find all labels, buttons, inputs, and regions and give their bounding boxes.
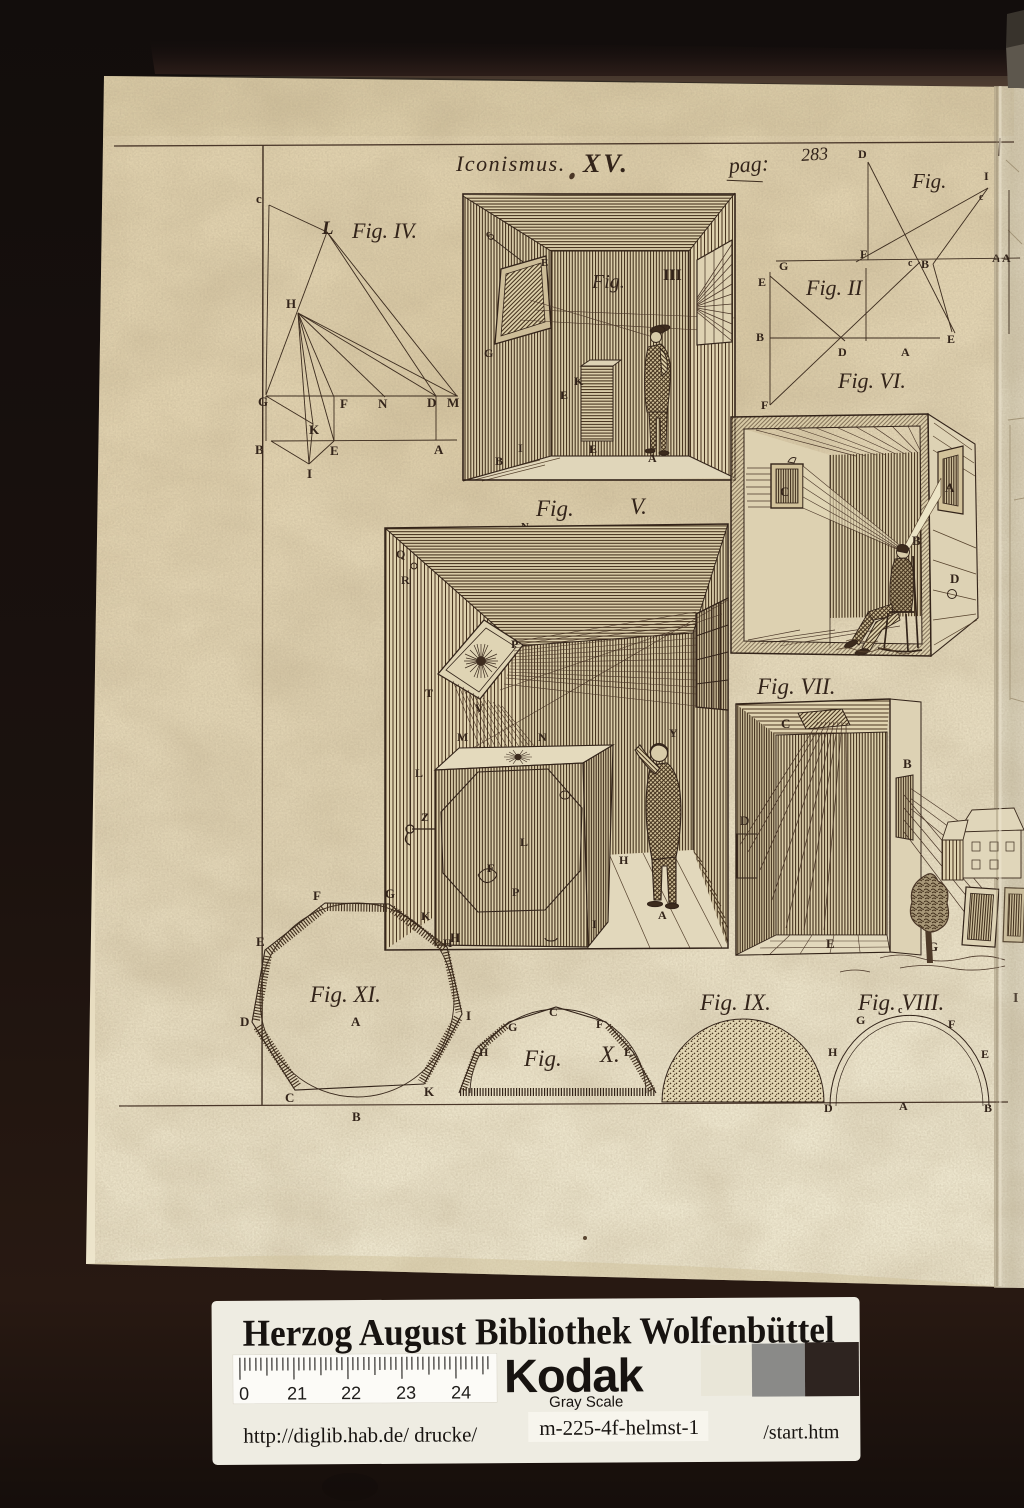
svg-text:G: G: [385, 886, 395, 901]
svg-text:A: A: [1002, 251, 1011, 265]
svg-text:E: E: [589, 442, 597, 456]
svg-text:E: E: [560, 388, 568, 402]
svg-text:C: C: [780, 484, 789, 499]
svg-text:M: M: [447, 395, 459, 410]
svg-text:B: B: [903, 756, 912, 771]
svg-text:Z: Z: [421, 810, 429, 824]
svg-text:G: G: [484, 346, 493, 360]
svg-text:Fig. XI.: Fig. XI.: [309, 982, 381, 1007]
svg-text:F: F: [860, 247, 867, 261]
svg-text:Fig.: Fig.: [591, 271, 625, 293]
svg-text:c: c: [256, 191, 262, 206]
svg-text:Fig. VII.: Fig. VII.: [756, 674, 836, 699]
svg-text:F: F: [596, 1017, 603, 1031]
svg-text:K: K: [424, 1084, 435, 1099]
svg-text:D: D: [240, 1014, 249, 1029]
svg-text:N: N: [378, 396, 388, 411]
svg-text:Fig.: Fig.: [535, 496, 574, 521]
svg-text:0: 0: [239, 1384, 249, 1404]
svg-text:G: G: [779, 259, 788, 273]
svg-text:N: N: [538, 730, 547, 744]
svg-text:C: C: [549, 1005, 558, 1019]
svg-text:G: G: [258, 394, 268, 409]
svg-text:D: D: [824, 1101, 833, 1115]
svg-text:D: D: [740, 813, 749, 828]
svg-text:Y: Y: [669, 726, 678, 740]
svg-text:c: c: [486, 229, 491, 240]
svg-text:Fig. IV.: Fig. IV.: [351, 218, 417, 243]
svg-text:III: III: [663, 267, 682, 284]
svg-text:H: H: [479, 1045, 489, 1059]
svg-text:Fig.: Fig.: [911, 169, 946, 193]
svg-text:Fig. VI.: Fig. VI.: [837, 368, 906, 393]
svg-text:Iconismus.: Iconismus.: [455, 151, 566, 176]
svg-text:m-225-4f-helmst-1: m-225-4f-helmst-1: [539, 1415, 699, 1440]
svg-text:D: D: [838, 345, 847, 359]
svg-text:A: A: [658, 908, 667, 922]
svg-text:P: P: [511, 637, 518, 651]
svg-text:T: T: [425, 686, 433, 700]
svg-text:B: B: [921, 257, 929, 271]
svg-text:K: K: [421, 909, 431, 923]
svg-text:I: I: [984, 169, 989, 183]
svg-text:283: 283: [800, 143, 828, 165]
svg-text:C: C: [285, 1090, 294, 1105]
svg-text:E: E: [330, 443, 339, 458]
svg-text:Q: Q: [396, 547, 405, 561]
svg-text:H: H: [828, 1045, 838, 1059]
svg-text:B: B: [495, 454, 503, 468]
svg-text:A: A: [648, 451, 657, 465]
svg-text:http://diglib.hab.de/ drucke/: http://diglib.hab.de/ drucke/: [243, 1422, 477, 1447]
svg-text:E: E: [256, 934, 265, 949]
svg-text:D: D: [950, 571, 959, 586]
svg-text:F: F: [340, 396, 348, 411]
svg-text:21: 21: [287, 1383, 307, 1403]
svg-text:D: D: [858, 147, 867, 161]
svg-text:pag:: pag:: [726, 150, 770, 178]
svg-text:V.: V.: [630, 494, 647, 519]
svg-text:A: A: [434, 442, 444, 457]
svg-text:23: 23: [396, 1383, 416, 1403]
svg-text:/start.htm: /start.htm: [763, 1421, 840, 1443]
svg-text:E: E: [624, 1045, 632, 1059]
svg-text:D: D: [427, 395, 436, 410]
svg-text:L: L: [415, 766, 423, 780]
svg-text:F: F: [761, 398, 768, 412]
svg-text:H: H: [619, 853, 629, 867]
svg-text:V: V: [475, 701, 484, 715]
svg-text:I: I: [1013, 991, 1018, 1006]
svg-text:c: c: [908, 258, 913, 269]
svg-text:c: c: [898, 1005, 903, 1016]
svg-text:A: A: [899, 1099, 908, 1113]
svg-text:M: M: [457, 730, 468, 744]
svg-text:22: 22: [341, 1383, 361, 1403]
svg-text:A: A: [901, 345, 910, 359]
svg-text:A: A: [351, 1014, 361, 1029]
svg-text:E: E: [758, 275, 766, 289]
svg-text:B: B: [912, 533, 921, 548]
svg-text:C: C: [781, 716, 790, 731]
svg-text:X.: X.: [599, 1042, 620, 1067]
svg-text:L: L: [520, 835, 528, 849]
svg-text:G: G: [508, 1020, 517, 1034]
svg-text:H: H: [450, 930, 460, 945]
svg-text:I: I: [307, 466, 312, 481]
svg-text:Fig. II: Fig. II: [805, 275, 864, 300]
svg-text:E: E: [826, 936, 835, 951]
svg-text:E: E: [947, 332, 955, 346]
svg-text:B: B: [984, 1101, 992, 1115]
svg-text:K: K: [309, 422, 320, 437]
svg-text:I: I: [466, 1008, 471, 1023]
svg-text:A: A: [945, 480, 955, 495]
svg-text:R: R: [401, 573, 410, 587]
svg-text:XV.: XV.: [582, 149, 630, 178]
svg-text:H: H: [286, 296, 296, 311]
svg-text:B: B: [255, 442, 264, 457]
svg-text:K: K: [574, 374, 584, 388]
svg-text:P: P: [512, 885, 519, 899]
svg-text:L: L: [321, 218, 334, 239]
svg-text:B: B: [756, 330, 764, 344]
svg-text:E: E: [541, 257, 548, 269]
svg-text:B: B: [352, 1109, 361, 1124]
svg-text:F: F: [313, 888, 321, 903]
svg-text:F: F: [948, 1017, 955, 1031]
svg-text:I: I: [518, 441, 523, 455]
svg-text:E: E: [981, 1047, 989, 1061]
svg-text:F: F: [487, 861, 494, 875]
svg-text:Fig.: Fig.: [523, 1046, 562, 1071]
svg-text:I: I: [592, 917, 597, 931]
svg-text:Gray Scale: Gray Scale: [549, 1393, 623, 1410]
svg-text:24: 24: [451, 1382, 471, 1402]
svg-text:c: c: [979, 192, 984, 203]
svg-text:G: G: [856, 1013, 865, 1027]
svg-text:Fig. IX.: Fig. IX.: [699, 990, 771, 1015]
